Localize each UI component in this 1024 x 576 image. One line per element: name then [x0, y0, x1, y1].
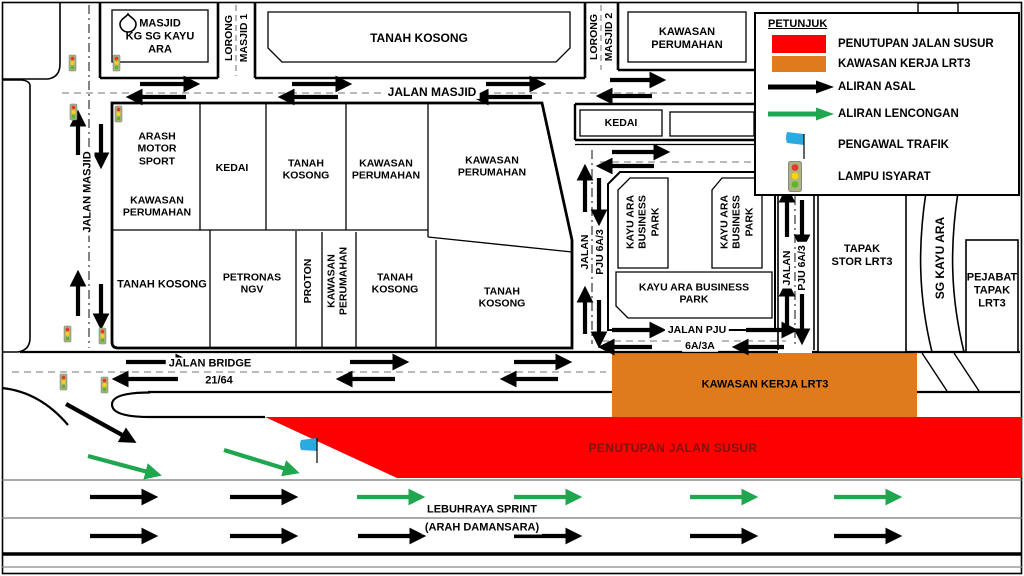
block-label-kayu-ara-bp3: KAYU ARA BUSINESS PARK — [639, 282, 749, 307]
legend: PETUNJUK PENUTUPAN JALAN SUSUR KAWASAN K… — [754, 12, 1020, 196]
block-label-tanah-kosong-r2a: TANAH KOSONG — [117, 279, 207, 292]
block-label-pejabat-tapak-lrt3: PEJABAT TAPAK LRT3 — [967, 272, 1018, 311]
black-arrow-icon — [768, 80, 834, 94]
shop-lot-box — [670, 112, 754, 136]
block-label-tanah-kosong-r1: TANAH KOSONG — [283, 158, 330, 183]
legend-item-label: PENUTUPAN JALAN SUSUR — [838, 38, 994, 50]
legend-item-label: ALIRAN ASAL — [838, 81, 916, 93]
road-label-jalan-bridge-2164: 21/64 — [202, 375, 236, 388]
legend-title: PETUNJUK — [768, 18, 827, 30]
river-label-sg-kayu-ara: SG KAYU ARA — [933, 217, 947, 299]
road-label-jalan-masjid: JALAN MASJID — [385, 85, 480, 99]
block-label-kayu-ara-bp1: KAYU ARA BUSINESS PARK — [624, 195, 661, 249]
road-label-jalan-pju-6a3a-b: 6A/3A — [682, 340, 718, 352]
block-label-petronas-ngv: PETRONAS NGV — [223, 272, 281, 297]
road-label-pju6a3-right: JALAN — [781, 247, 793, 288]
block-label-tanah-kosong-top: TANAH KOSONG — [370, 31, 468, 45]
block-label-arash-kawasan-perumahan: KAWASAN PERUMAHAN — [123, 195, 191, 220]
block-label-tanah-kosong-big: TANAH KOSONG — [479, 286, 526, 311]
road-label-lorong-masjid-2: LORONG — [588, 14, 600, 60]
traffic-controller-flag-icon — [300, 438, 317, 463]
closure-area-label: PENUTUPAN JALAN SUSUR — [589, 441, 758, 455]
block-label-arash-motor-sport: ARASH MOTOR SPORT — [138, 130, 177, 167]
traffic-light-icon — [788, 161, 803, 193]
block-label-kawasan-perumahan-big: KAWASAN PERUMAHAN — [458, 155, 526, 180]
road-label-lorong-masjid-2b: MASJID 2 — [603, 13, 615, 61]
block-label-masjid: MASJID KG SG KAYU ARA — [126, 18, 195, 57]
road-label-jalan-pju-6a3a: JALAN PJU — [665, 324, 729, 336]
legend-item-label: KAWASAN KERJA LRT3 — [838, 58, 970, 70]
orange-swatch — [772, 56, 826, 72]
work-area-label: KAWASAN KERJA LRT3 — [702, 379, 829, 392]
legend-item-label: PENGAWAL TRAFIK — [838, 139, 949, 151]
block-label-kayu-ara-bp2: KAYU ARA BUSINESS PARK — [718, 195, 755, 249]
block-label-tapak-stor-lrt3: TAPAK STOR LRT3 — [832, 243, 893, 269]
blue-flag-icon — [784, 132, 810, 160]
block-label-kedai-left: KEDAI — [216, 162, 249, 174]
block-label-tanah-kosong-r2b: TANAH KOSONG — [372, 272, 419, 297]
road-label-lebuhraya-sprint: LEBUHRAYA SPRINT — [424, 504, 540, 517]
tapak-stor-block — [818, 192, 906, 352]
block-label-kawasan-perumahan-topright: KAWASAN PERUMAHAN — [651, 26, 723, 52]
road-label-jalan-bridge: JALAN BRIDGE — [166, 358, 255, 371]
road-label-pju6a3-left: JALAN — [579, 231, 591, 272]
road-label-arah-damansara: (ARAH DAMANSARA) — [422, 522, 542, 535]
road-label-lorong-masjid-1b: MASJID 1 — [238, 14, 250, 62]
legend-item-label: ALIRAN LENCONGAN — [838, 108, 959, 120]
red-swatch — [772, 35, 826, 53]
green-arrow-icon — [768, 107, 834, 121]
block-label-kawasan-perumahan-vertical: KAWASAN PERUMAHAN — [326, 247, 351, 315]
traffic-diversion-map: MASJID KG SG KAYU ARA LORONG MASJID 1 TA… — [0, 0, 1024, 576]
block-label-proton: PROTON — [302, 259, 314, 304]
road-label-jalan-masjid-vertical: JALAN MASJID — [82, 148, 95, 235]
road-label-lorong-masjid-1: LORONG — [223, 15, 235, 61]
legend-item-label: LAMPU ISYARAT — [838, 171, 931, 183]
block-label-kawasan-perumahan-r1: KAWASAN PERUMAHAN — [352, 158, 420, 183]
road-label-pju6a3-right-b: PJU 6A/3 — [796, 242, 808, 294]
block-label-kedai-top: KEDAI — [605, 117, 638, 129]
road-label-pju6a3-left-b: PJU 6A/3 — [594, 226, 606, 278]
